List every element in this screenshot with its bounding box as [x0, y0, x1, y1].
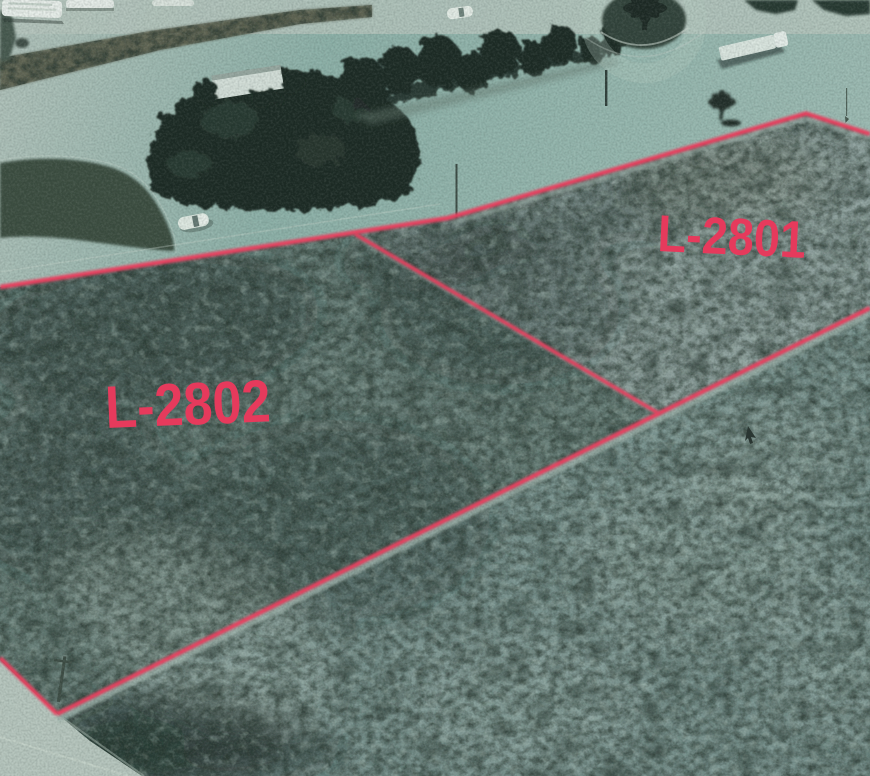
svg-text:L-2802: L-2802: [104, 367, 272, 441]
svg-text:L-2801: L-2801: [656, 205, 807, 269]
